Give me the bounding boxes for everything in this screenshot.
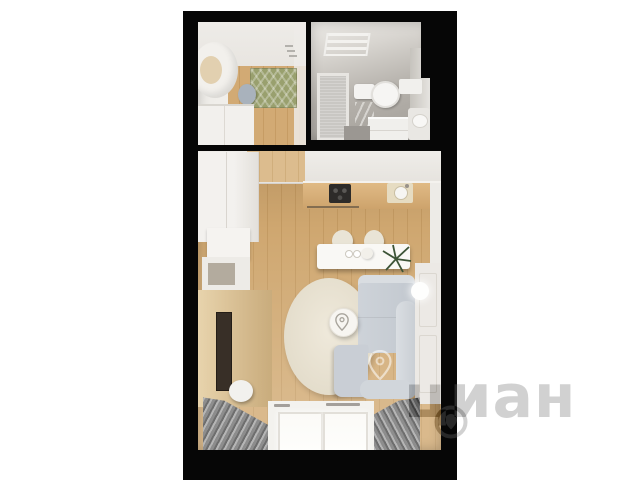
- window-pane: [278, 412, 323, 450]
- bathroom-shelf: [399, 79, 422, 94]
- watermark-logo-pin-circle-icon: [433, 404, 469, 440]
- window-pane: [323, 412, 368, 450]
- towel-radiator: [323, 33, 370, 56]
- screenshot-canvas: циан: [0, 0, 640, 480]
- room-bathroom: [311, 22, 430, 140]
- shelf-box-upper: [207, 228, 250, 259]
- wall-lamp: [411, 282, 429, 300]
- right-wall-upper: [430, 183, 441, 267]
- cup: [353, 250, 361, 258]
- hallway-wardrobe: [198, 104, 254, 145]
- cup: [345, 250, 353, 258]
- bathroom-vanity: [368, 117, 408, 140]
- sill-vent: [274, 404, 290, 407]
- hallway-door-inner: [200, 56, 222, 84]
- bathroom-floor: [344, 126, 370, 140]
- shelf-niche: [208, 263, 235, 285]
- toilet-bowl: [371, 81, 400, 108]
- wall-hook: [287, 50, 295, 52]
- oven-handle-rail: [307, 206, 359, 208]
- watermark-text: циан: [404, 367, 576, 427]
- wall-panel: [419, 273, 437, 327]
- hallway-stool: [238, 84, 256, 105]
- watermark-pin-icon: [335, 313, 349, 331]
- plant-icon: [379, 241, 413, 275]
- wall-tv: [216, 312, 232, 391]
- wall-hook: [289, 55, 297, 57]
- cooktop: [329, 184, 351, 203]
- wall-hook: [285, 45, 293, 47]
- washbasin-bowl: [412, 114, 428, 128]
- room-hallway: [198, 22, 306, 145]
- sill-vent: [326, 403, 360, 406]
- watermark-pin-icon: [368, 350, 392, 380]
- doormat-chevron: [250, 68, 297, 108]
- kitchen-faucet: [405, 184, 409, 188]
- pouf: [229, 380, 253, 402]
- kitchen-sink-basin: [394, 186, 408, 200]
- matte-notch: [421, 22, 430, 78]
- kitchen-counter: [303, 181, 441, 209]
- teapot: [361, 248, 373, 259]
